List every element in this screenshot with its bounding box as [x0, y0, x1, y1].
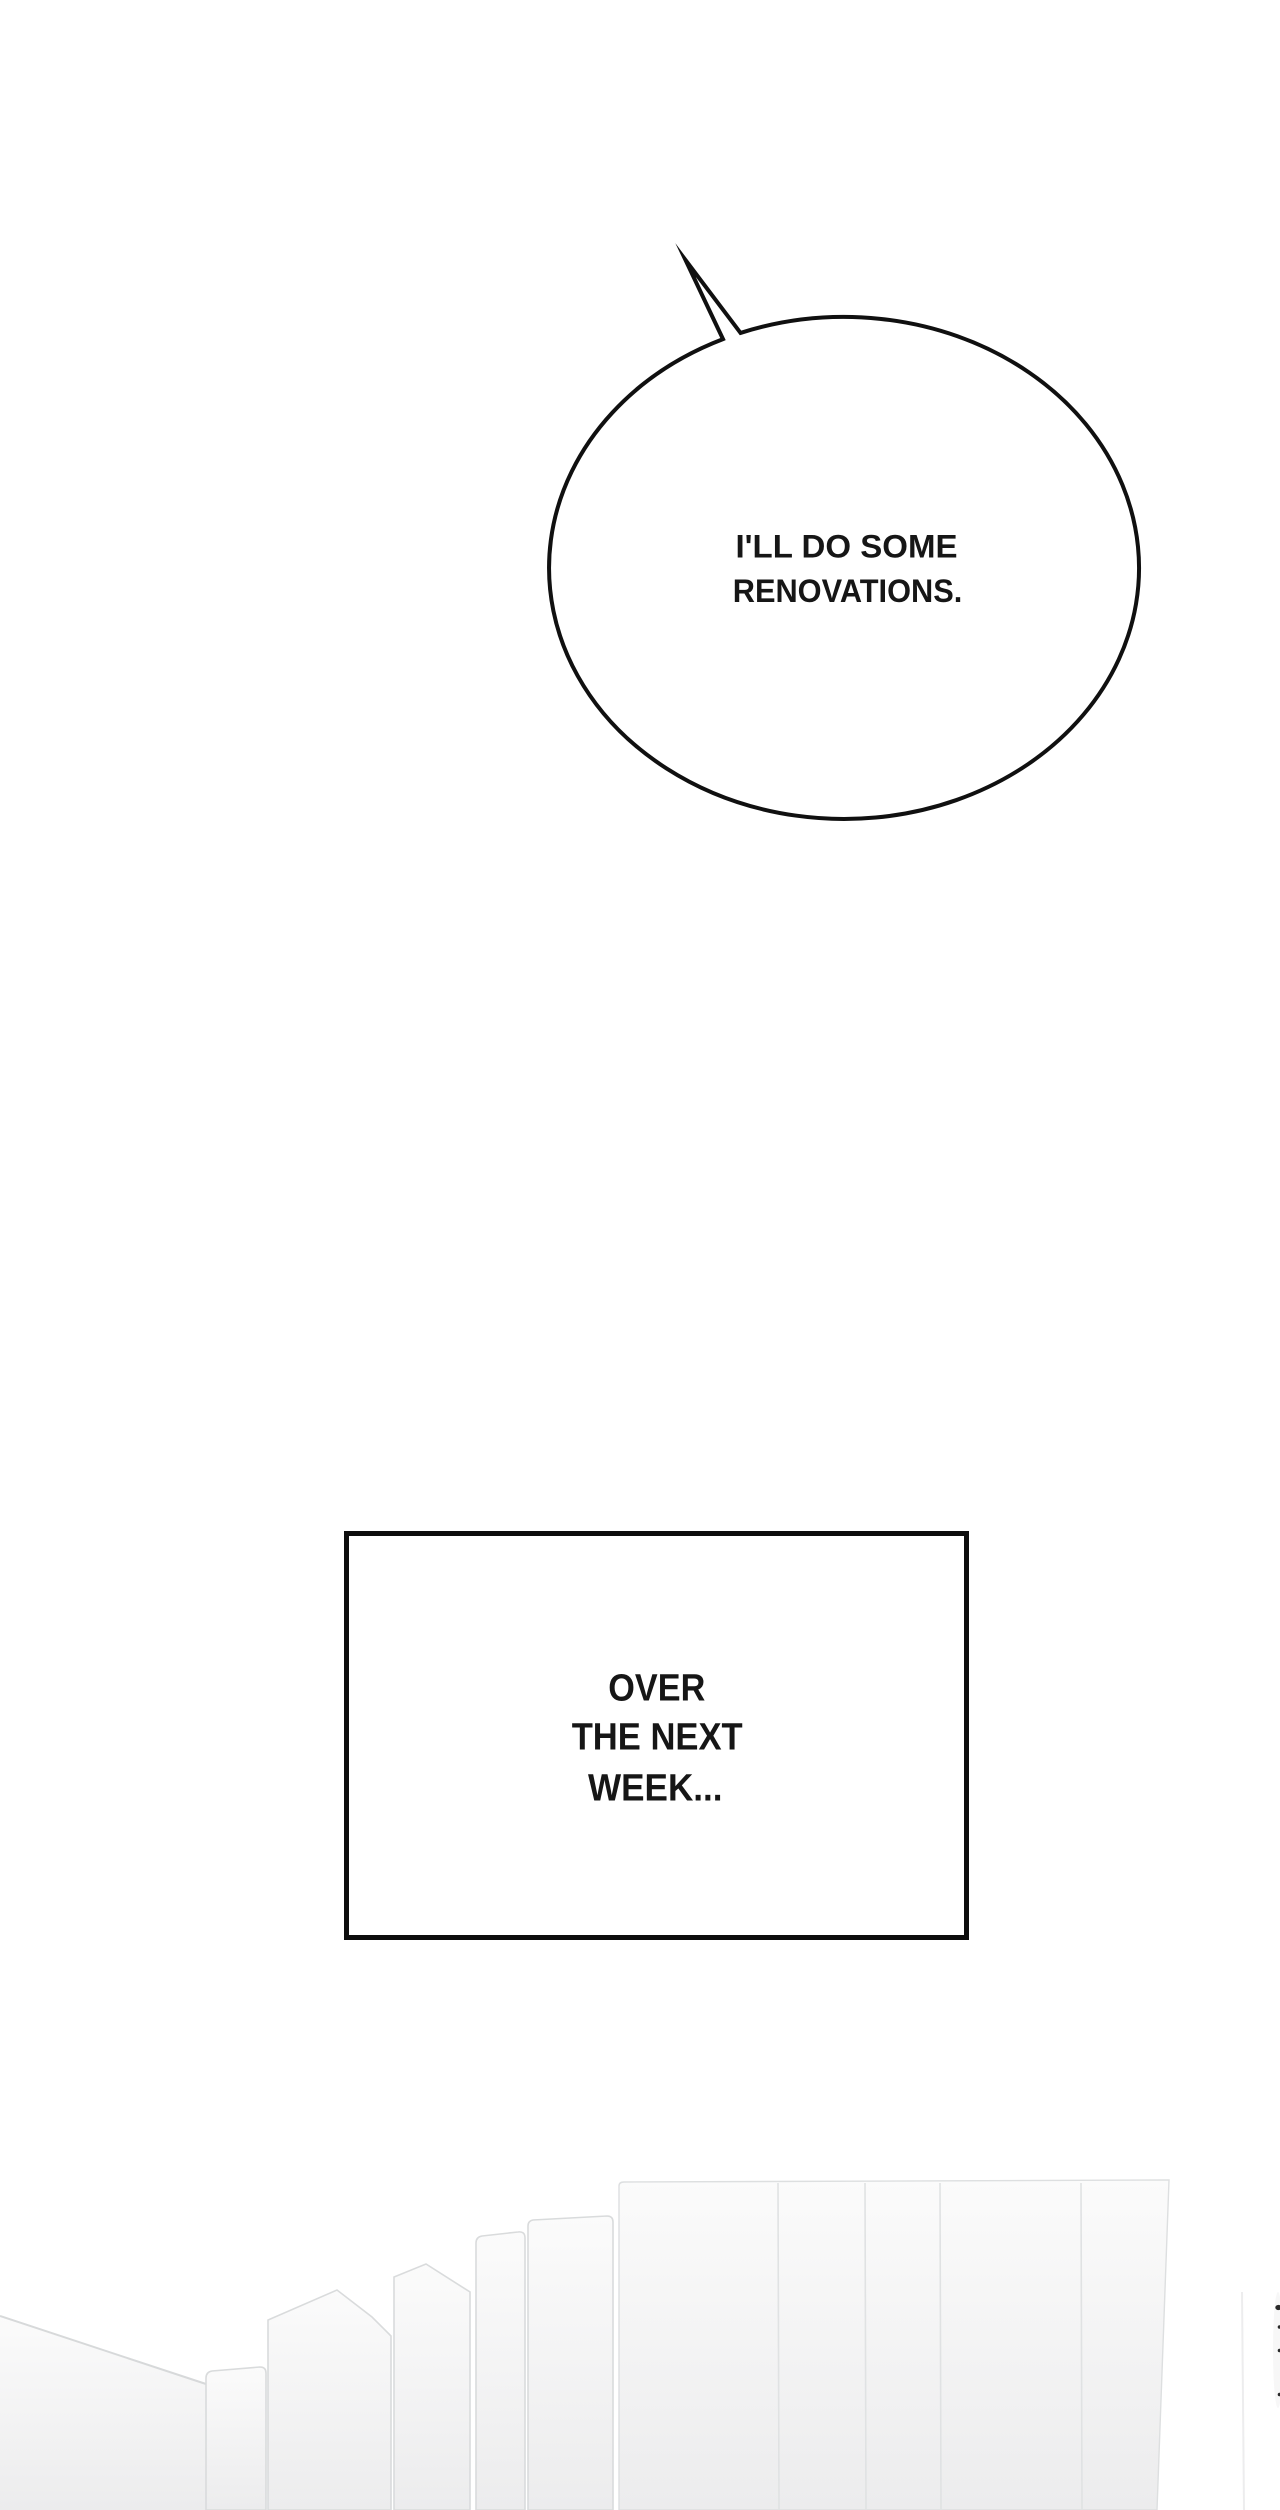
- svg-text:RENOVATIONS.: RENOVATIONS.: [733, 573, 963, 609]
- svg-text:WEEK...: WEEK...: [588, 1767, 723, 1809]
- svg-text:I'LL DO SOME: I'LL DO SOME: [736, 529, 958, 565]
- svg-text:OVER: OVER: [608, 1667, 705, 1709]
- svg-text:THE NEXT: THE NEXT: [572, 1717, 743, 1759]
